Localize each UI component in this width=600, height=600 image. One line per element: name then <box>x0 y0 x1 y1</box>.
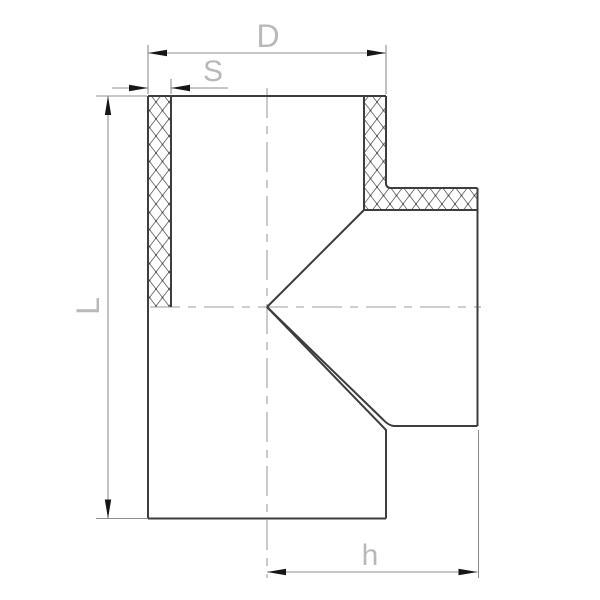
dimension-label-l: L <box>70 297 106 315</box>
dimension-label-s: S <box>203 55 223 88</box>
tee-fitting-technical-drawing: D S L h <box>0 0 600 600</box>
dimension-label-d: D <box>256 18 279 54</box>
dimension-label-h: h <box>362 539 379 572</box>
left-socket-wall-hatch <box>148 96 171 307</box>
